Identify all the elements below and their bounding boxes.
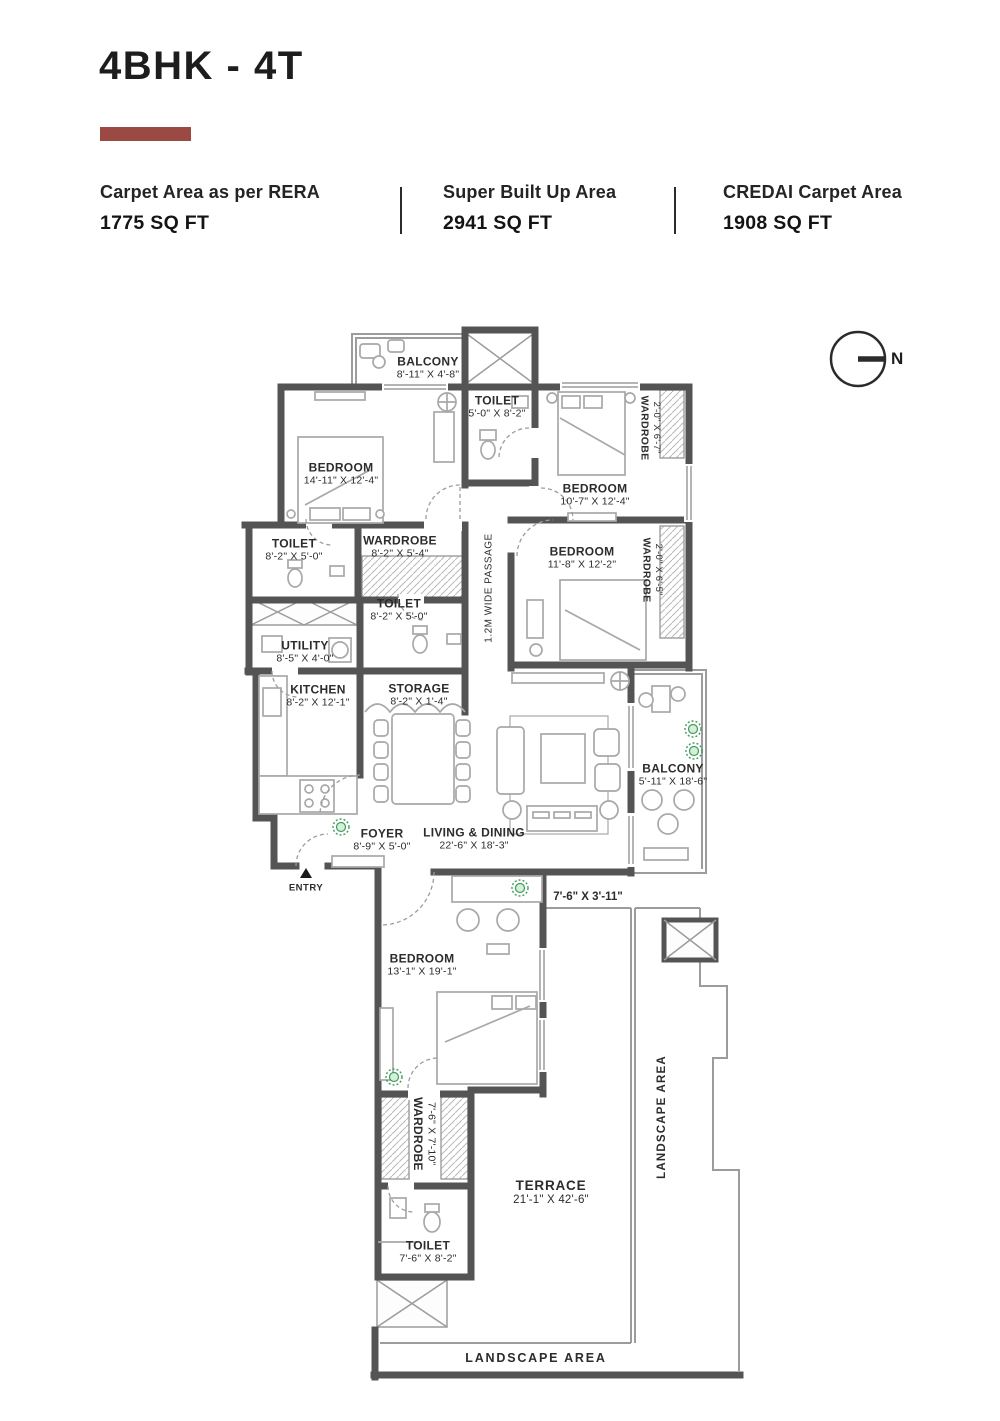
north-label: N: [891, 349, 903, 369]
room-name: KITCHEN: [286, 683, 349, 697]
entry-label: ENTRY: [289, 883, 323, 894]
room-label-balcony-top: BALCONY 8'-11" X 4'-8": [397, 355, 460, 382]
room-dims: 8'-2" X 5'-0": [265, 551, 322, 564]
room-dims: 7'-6" X 7'-10": [425, 1097, 438, 1171]
room-dims: 7'-6" X 8'-2": [399, 1253, 456, 1266]
room-dims: 8'-2" X 1'-4": [388, 696, 449, 709]
room-label-foyer: FOYER 8'-9" X 5'-0": [353, 827, 410, 854]
room-label-toilet-bottom: TOILET 7'-6" X 8'-2": [399, 1239, 456, 1266]
room-name: TOILET: [468, 394, 525, 408]
plant-icon: [685, 721, 701, 737]
entry-arrow-icon: [300, 868, 312, 878]
room-label-wardrobe-bedroom-2: WARDROBE 2'-0" X 6'-7": [638, 396, 662, 461]
room-label-bedroom-2: BEDROOM 10'-7" X 12'-4": [560, 482, 629, 509]
room-name: WARDROBE: [638, 396, 651, 461]
room-name: BEDROOM: [387, 952, 456, 966]
landscape-area-right-label: LANDSCAPE AREA: [656, 1055, 668, 1179]
room-dims: 8'-9" X 5'-0": [353, 841, 410, 854]
room-name: BALCONY: [397, 355, 460, 369]
landscape-area-bottom-label: LANDSCAPE AREA: [465, 1351, 606, 1365]
floorplan-drawing: [0, 0, 1000, 1421]
room-label-living-dining: LIVING & DINING 22'-6" X 18'-3": [423, 826, 525, 853]
room-dims: 8'-2" X 5'-4": [363, 548, 437, 561]
room-label-balcony-right: BALCONY 5'-11" X 18'-6": [639, 762, 708, 789]
room-label-toilet-top: TOILET 5'-0" X 8'-2": [468, 394, 525, 421]
room-dims: 8'-5" X 4'-0": [276, 653, 333, 666]
room-name: WARDROBE: [363, 534, 437, 548]
passage-label: 1.2M WIDE PASSAGE: [484, 533, 495, 642]
room-name: TOILET: [265, 537, 322, 551]
room-name: FOYER: [353, 827, 410, 841]
room-dims: 14'-11" X 12'-4": [304, 475, 379, 488]
room-name: STORAGE: [388, 682, 449, 696]
room-label-bedroom-4: BEDROOM 13'-1" X 19'-1": [387, 952, 456, 979]
plant-icon: [333, 819, 349, 835]
room-dims: 2'-0" X 6'-7": [651, 396, 662, 461]
room-dims: 8'-2" X 12'-1": [286, 697, 349, 710]
deck-dims-label: 7'-6" X 3'-11": [553, 891, 622, 903]
room-name: WARDROBE: [411, 1097, 425, 1171]
room-label-bedroom-3: BEDROOM 11'-8" X 12'-2": [548, 545, 617, 572]
room-dims: 10'-7" X 12'-4": [560, 496, 629, 509]
floorplan-page: 4BHK - 4T Carpet Area as per RERA 1775 S…: [0, 0, 1000, 1421]
plant-icon: [686, 743, 702, 759]
room-dims: 5'-11" X 18'-6": [639, 776, 708, 789]
room-name: LIVING & DINING: [423, 826, 525, 840]
compass-icon: [831, 332, 885, 386]
room-label-toilet-left: TOILET 8'-2" X 5'-0": [265, 537, 322, 564]
room-dims: 8'-2" X 5'-0": [370, 611, 427, 624]
room-label-bedroom-1: BEDROOM 14'-11" X 12'-4": [304, 461, 379, 488]
room-name: TOILET: [370, 597, 427, 611]
room-dims: 5'-0" X 8'-2": [468, 408, 525, 421]
room-label-toilet-mid: TOILET 8'-2" X 5'-0": [370, 597, 427, 624]
room-name: TERRACE: [513, 1178, 589, 1194]
room-label-storage: STORAGE 8'-2" X 1'-4": [388, 682, 449, 709]
room-label-wardrobe-bottom: WARDROBE 7'-6" X 7'-10": [411, 1097, 438, 1171]
room-label-wardrobe-bedroom-3: WARDROBE 2'-0" X 6'-5": [640, 538, 664, 603]
room-name: BEDROOM: [304, 461, 379, 475]
room-name: BEDROOM: [548, 545, 617, 559]
room-dims: 13'-1" X 19'-1": [387, 966, 456, 979]
room-name: BEDROOM: [560, 482, 629, 496]
room-dims: 21'-1" X 42'-6": [513, 1194, 589, 1208]
room-name: UTILITY: [276, 639, 333, 653]
room-dims: 11'-8" X 12'-2": [548, 559, 617, 572]
room-label-terrace: TERRACE 21'-1" X 42'-6": [513, 1178, 589, 1208]
room-dims: 2'-0" X 6'-5": [653, 538, 664, 603]
room-name: WARDROBE: [640, 538, 653, 603]
room-dims: 22'-6" X 18'-3": [423, 840, 525, 853]
room-dims: 8'-11" X 4'-8": [397, 369, 460, 382]
room-name: TOILET: [399, 1239, 456, 1253]
room-label-kitchen: KITCHEN 8'-2" X 12'-1": [286, 683, 349, 710]
room-name: BALCONY: [639, 762, 708, 776]
room-label-utility: UTILITY 8'-5" X 4'-0": [276, 639, 333, 666]
room-label-wardrobe-mid: WARDROBE 8'-2" X 5'-4": [363, 534, 437, 561]
